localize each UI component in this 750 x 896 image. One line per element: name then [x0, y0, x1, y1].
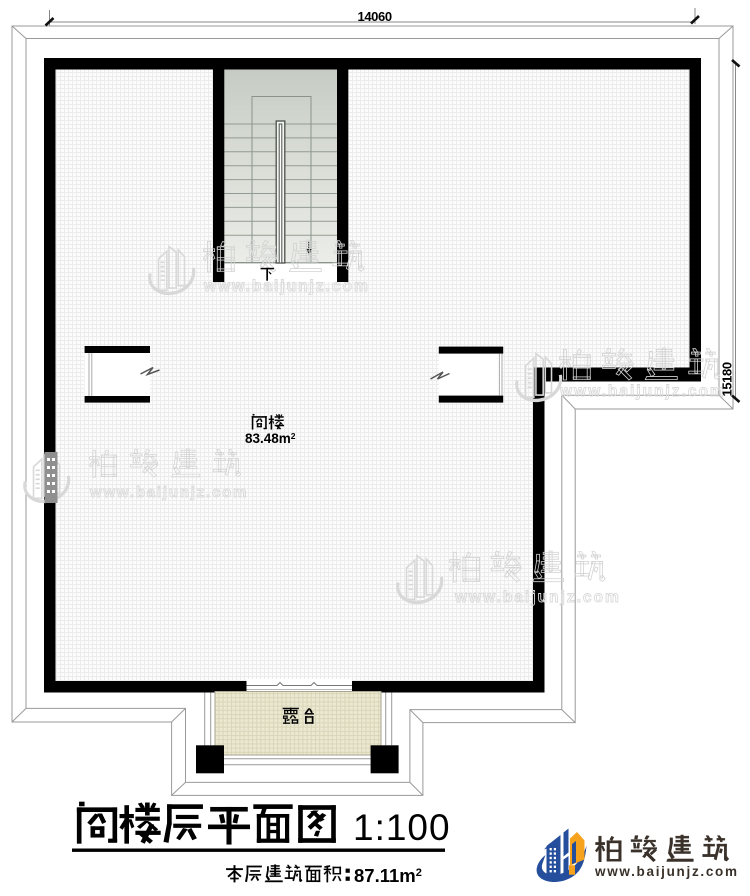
svg-text:14060: 14060 — [358, 9, 392, 24]
svg-text:www.baijunjz.com: www.baijunjz.com — [203, 278, 370, 295]
svg-text:83.48m2: 83.48m2 — [245, 431, 296, 446]
svg-text:1:100: 1:100 — [353, 807, 451, 848]
svg-text:www.baijunjz.com: www.baijunjz.com — [89, 484, 248, 501]
svg-text:www.baijunjz.com: www.baijunjz.com — [594, 864, 739, 879]
svg-text:www.baijunjz.com: www.baijunjz.com — [454, 589, 621, 606]
svg-text:15180: 15180 — [720, 362, 735, 396]
svg-text:87.11m2: 87.11m2 — [354, 865, 422, 886]
svg-text:www.baijunjz.com: www.baijunjz.com — [559, 383, 726, 400]
